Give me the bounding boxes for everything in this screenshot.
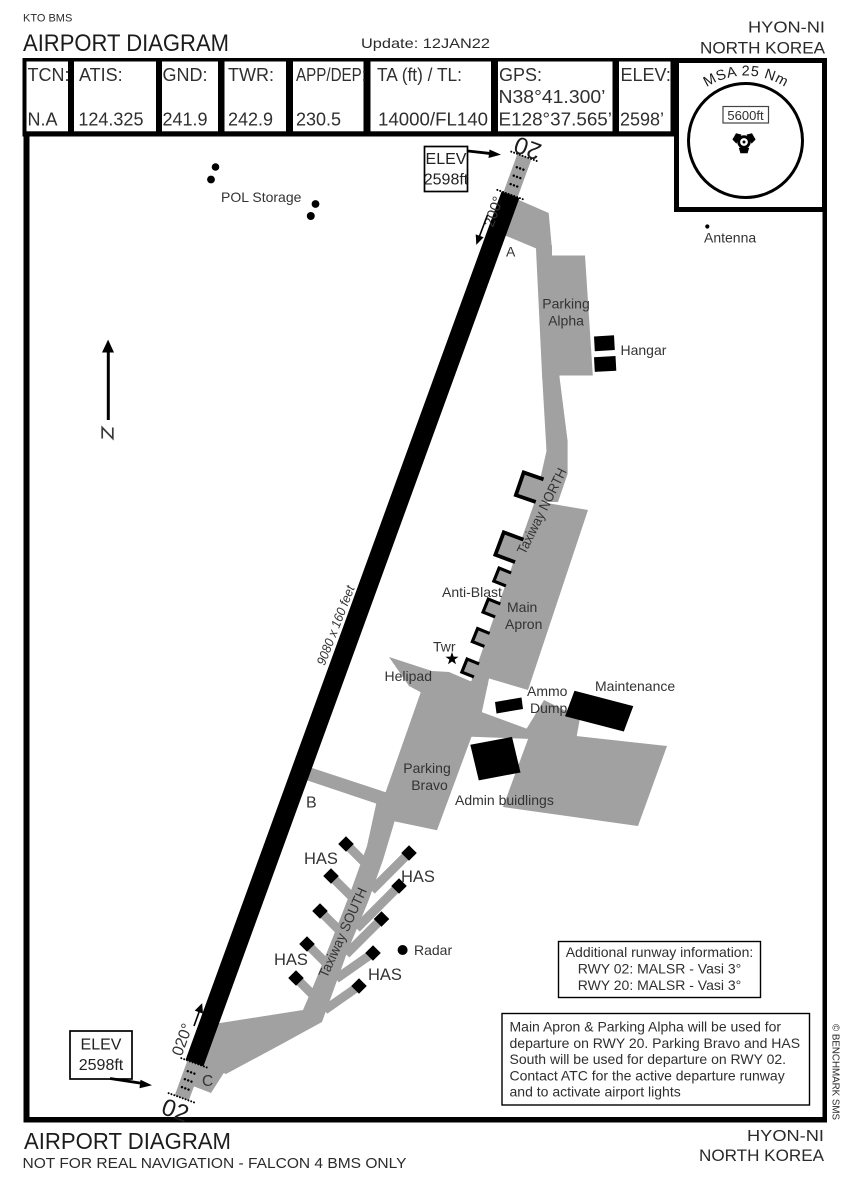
svg-text:Apron: Apron [505, 616, 542, 632]
svg-text:HYON-NI: HYON-NI [747, 1128, 824, 1145]
svg-text:and to activate airport lights: and to activate airport lights [510, 1084, 681, 1100]
svg-text:NORTH KOREA: NORTH KOREA [700, 40, 825, 58]
svg-text:HAS: HAS [368, 966, 402, 984]
svg-text:14000/FL140: 14000/FL140 [378, 110, 488, 130]
svg-text:ATIS:: ATIS: [79, 65, 123, 85]
svg-text:AIRPORT DIAGRAM: AIRPORT DIAGRAM [24, 1128, 231, 1154]
svg-text:APP/DEP:: APP/DEP: [296, 65, 366, 85]
svg-text:NOT FOR REAL NAVIGATION - FALC: NOT FOR REAL NAVIGATION - FALCON 4 BMS O… [23, 1155, 407, 1172]
svg-text:departure on RWY 20. Parking B: departure on RWY 20. Parking Bravo and H… [510, 1035, 801, 1051]
svg-text:2598’: 2598’ [620, 110, 664, 130]
svg-text:RWY 20: MALSR - Vasi 3°: RWY 20: MALSR - Vasi 3° [578, 977, 742, 993]
svg-text:Ammo: Ammo [527, 683, 568, 699]
svg-text:A: A [506, 244, 516, 260]
svg-text:Admin buidlings: Admin buidlings [455, 792, 554, 808]
svg-text:AIRPORT DIAGRAM: AIRPORT DIAGRAM [23, 30, 229, 57]
svg-text:HAS: HAS [274, 951, 308, 969]
svg-text:2598ft: 2598ft [79, 1057, 124, 1074]
svg-text:Main Apron & Parking Alpha wil: Main Apron & Parking Alpha will be used … [510, 1019, 782, 1035]
svg-text:POL Storage: POL Storage [221, 189, 302, 205]
svg-text:Anti-Blast: Anti-Blast [442, 584, 502, 600]
svg-text:© BENCHMARK SMS: © BENCHMARK SMS [830, 1024, 842, 1120]
svg-text:TA (ft) / TL:: TA (ft) / TL: [377, 65, 462, 85]
svg-text:N.A: N.A [28, 110, 58, 130]
svg-text:5600ft: 5600ft [727, 108, 764, 123]
svg-text:Contact ATC for the active dep: Contact ATC for the active departure run… [510, 1067, 785, 1083]
svg-text:HYON-NI: HYON-NI [748, 20, 825, 37]
svg-text:ELEV: ELEV [81, 1037, 122, 1054]
svg-text:242.9: 242.9 [228, 110, 273, 130]
svg-text:Helipad: Helipad [385, 668, 432, 684]
svg-text:Maintenance: Maintenance [595, 678, 675, 694]
svg-text:TWR:: TWR: [228, 65, 274, 85]
svg-text:Bravo: Bravo [411, 777, 448, 793]
svg-text:2598ft: 2598ft [424, 172, 469, 189]
svg-text:HAS: HAS [304, 850, 338, 868]
svg-text:NORTH KOREA: NORTH KOREA [699, 1147, 824, 1165]
svg-text:241.9: 241.9 [163, 110, 208, 130]
svg-text:GND:: GND: [163, 65, 208, 85]
svg-text:E128°37.565’: E128°37.565’ [499, 110, 613, 130]
svg-text:GPS:: GPS: [499, 65, 542, 85]
svg-text:ELEV: ELEV [426, 151, 467, 168]
svg-text:Update: 12JAN22: Update: 12JAN22 [361, 35, 490, 51]
svg-text:Main: Main [507, 599, 537, 615]
svg-text:Alpha: Alpha [548, 313, 584, 329]
svg-text:124.325: 124.325 [78, 110, 143, 130]
svg-text:230.5: 230.5 [296, 110, 341, 130]
svg-text:Parking: Parking [403, 760, 450, 776]
svg-text:Parking: Parking [542, 296, 589, 312]
svg-text:Hangar: Hangar [621, 342, 667, 358]
svg-text:South will be used for departu: South will be used for departure on RWY … [510, 1051, 787, 1067]
svg-text:Additional runway information:: Additional runway information: [566, 944, 754, 960]
svg-text:ELEV:: ELEV: [621, 65, 671, 85]
svg-text:Antenna: Antenna [704, 230, 756, 246]
svg-text:TCN:: TCN: [28, 65, 70, 85]
svg-text:RWY 02: MALSR - Vasi 3°: RWY 02: MALSR - Vasi 3° [578, 961, 742, 977]
svg-text:Twr: Twr [433, 639, 456, 655]
svg-text:C: C [202, 1073, 213, 1090]
svg-text:B: B [306, 795, 317, 812]
svg-text:KTO BMS: KTO BMS [23, 13, 72, 25]
svg-text:HAS: HAS [401, 868, 435, 886]
svg-text:N38°41.300’: N38°41.300’ [499, 87, 606, 107]
svg-text:Radar: Radar [414, 942, 452, 958]
svg-text:Dump: Dump [530, 700, 568, 716]
